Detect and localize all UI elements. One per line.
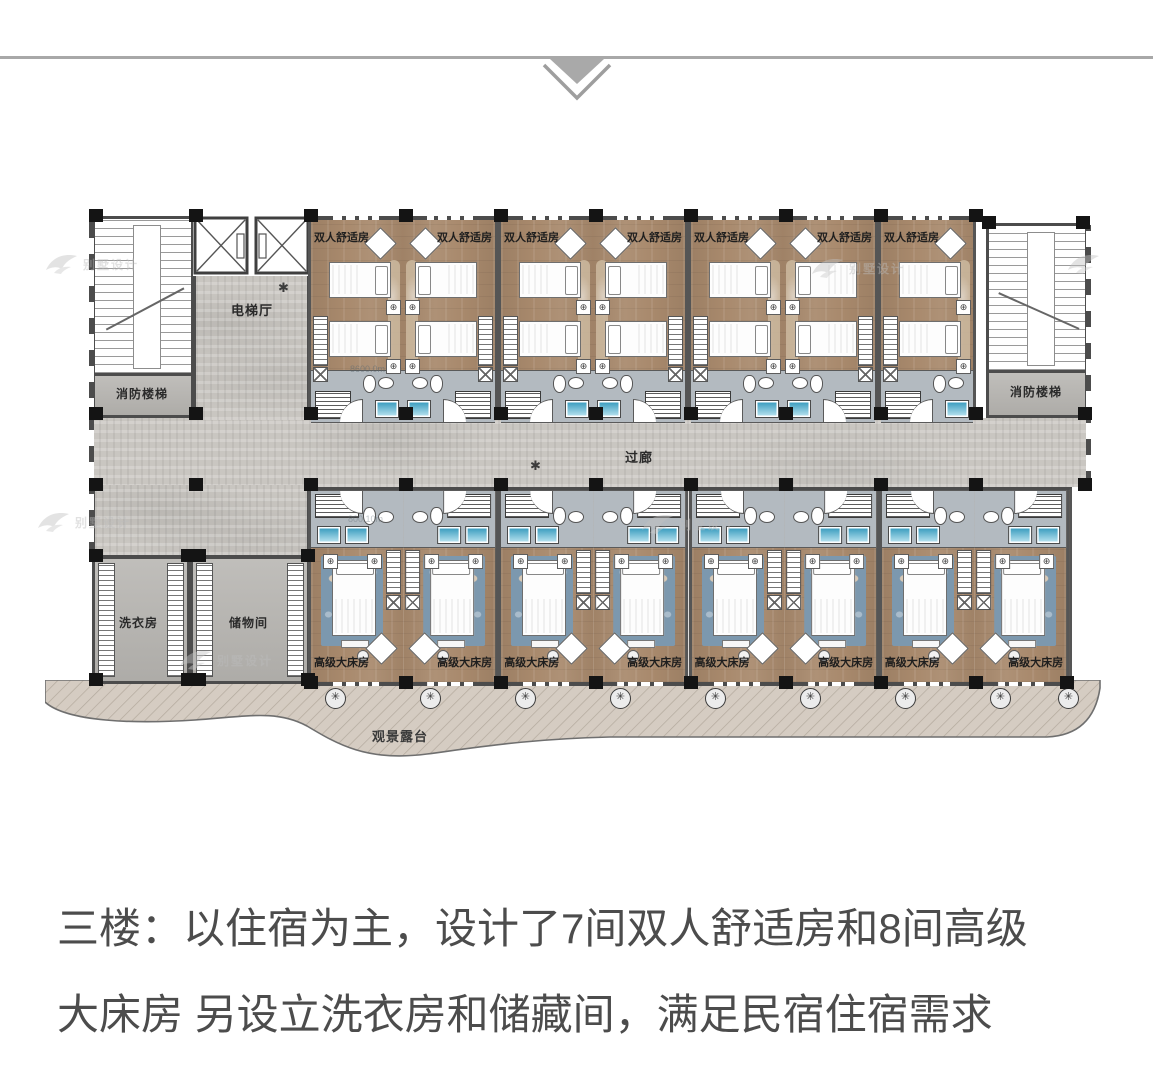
- bathroom: [501, 490, 593, 548]
- room-label: 高级大床房: [885, 654, 940, 670]
- luggage-rack-icon: [693, 367, 708, 382]
- room-label: 双人舒适房: [314, 229, 369, 245]
- vanity-icon: [345, 526, 369, 544]
- double-room: 双人舒适房 ⊕ ⊕: [783, 220, 878, 417]
- sink-icon: [378, 377, 394, 389]
- column: [494, 209, 508, 222]
- column: [301, 673, 315, 686]
- stairwell-right: [986, 223, 1088, 373]
- chevron-down-icon: [538, 59, 616, 107]
- vanity-icon: [375, 400, 399, 418]
- vanity-icon: [726, 526, 750, 544]
- column: [399, 478, 413, 491]
- dimension-note: 8600.0m: [350, 364, 385, 374]
- nightstand-icon: ⊕: [956, 359, 971, 374]
- fire-stairs-right-label: 消防楼梯: [1010, 383, 1062, 400]
- double-room: 双人舒适房 ⊕ ⊕: [593, 220, 688, 417]
- column: [779, 407, 793, 420]
- nightstand-icon: ⊕: [1039, 554, 1054, 569]
- toilet-icon: [620, 375, 633, 393]
- bathroom: [974, 490, 1066, 548]
- sink-icon: [759, 511, 775, 523]
- elevator-hall: [193, 273, 310, 420]
- bed-icon: [430, 560, 474, 636]
- vanity-icon: [465, 526, 489, 544]
- column: [1076, 216, 1090, 229]
- laundry-label: 洗衣房: [119, 614, 158, 631]
- column: [589, 676, 603, 689]
- column: [494, 407, 508, 420]
- nightstand-icon: ⊕: [468, 554, 483, 569]
- column: [874, 407, 888, 420]
- armchair-icon: [934, 227, 967, 260]
- column: [494, 676, 508, 689]
- potted-plant-icon: ✳: [800, 688, 821, 709]
- nightstand-icon: ⊕: [405, 300, 420, 315]
- right-facade-windows: [1086, 225, 1091, 487]
- terrace-label: 观景露台: [372, 726, 428, 745]
- double-room: 双人舒适房 ⊕ ⊕: [498, 220, 593, 417]
- wardrobe-icon: [405, 550, 420, 594]
- vanity-icon: [755, 400, 779, 418]
- toilet-icon: [744, 507, 757, 525]
- nightstand-icon: ⊕: [323, 554, 338, 569]
- window-strip: [998, 682, 1044, 686]
- window-strip: [617, 216, 663, 220]
- sink-icon: [792, 377, 808, 389]
- room-label: 双人舒适房: [817, 229, 872, 245]
- column: [969, 478, 983, 491]
- column: [779, 478, 793, 491]
- vanity-icon: [1036, 526, 1060, 544]
- king-room: ⊕ ⊕ 高级大床房: [498, 490, 593, 682]
- bird-logo-icon: [44, 252, 78, 276]
- bed-icon: [519, 321, 581, 357]
- armchair-icon: [554, 227, 587, 260]
- bench-icon: [818, 640, 846, 648]
- potted-plant-icon: ✳: [1058, 688, 1079, 709]
- armchair-icon: [744, 227, 777, 260]
- luggage-rack-icon: [313, 367, 328, 382]
- hall-lower: [92, 485, 310, 558]
- window-strip: [713, 216, 759, 220]
- luggage-rack-icon: [668, 367, 683, 382]
- luggage-rack-icon: [478, 367, 493, 382]
- dimension-note: 800.10m: [348, 514, 383, 524]
- nightstand-icon: ⊕: [849, 554, 864, 569]
- toilet-icon: [553, 375, 566, 393]
- room-label: 双人舒适房: [437, 229, 492, 245]
- bed-icon: [709, 262, 771, 298]
- wardrobe-icon: [313, 316, 328, 366]
- column: [399, 209, 413, 222]
- bed-icon: [605, 262, 667, 298]
- luggage-rack-icon: [386, 595, 401, 610]
- wardrobe-icon: [386, 550, 401, 594]
- bathroom: [403, 490, 495, 548]
- double-room-row: 双人舒适房 ⊕ ⊕ 双人舒适房: [308, 216, 976, 420]
- vanity-icon: [846, 526, 870, 544]
- bed-icon: [903, 560, 947, 636]
- room-label: 高级大床房: [628, 654, 683, 670]
- column: [684, 407, 698, 420]
- luggage-rack-icon: [957, 595, 972, 610]
- room-label: 高级大床房: [504, 654, 559, 670]
- vanity-icon: [818, 526, 842, 544]
- vanity-icon: [1008, 526, 1032, 544]
- column: [89, 407, 103, 420]
- column: [779, 676, 793, 689]
- left-facade-windows: [89, 218, 94, 558]
- shaft-hatch: [287, 563, 304, 677]
- elevator-hall-label: 电梯厅: [231, 300, 273, 319]
- window-strip: [427, 216, 473, 220]
- toilet-icon: [1001, 507, 1014, 525]
- column: [304, 407, 318, 420]
- vanity-icon: [535, 526, 559, 544]
- column: [874, 676, 888, 689]
- potted-plant-icon: ✳: [420, 688, 441, 709]
- king-room: ⊕ ⊕ 高级大床房: [784, 490, 879, 682]
- potted-plant-icon: ✳: [325, 688, 346, 709]
- window-strip: [427, 682, 473, 686]
- column: [301, 549, 315, 562]
- shaft-hatch: [167, 563, 184, 677]
- nightstand-icon: ⊕: [386, 300, 401, 315]
- column: [304, 478, 318, 491]
- bed-icon: [621, 560, 665, 636]
- fire-stairs-left-label: 消防楼梯: [116, 385, 168, 402]
- luggage-rack-icon: [858, 367, 873, 382]
- sink-icon: [948, 377, 964, 389]
- nightstand-icon: ⊕: [659, 554, 674, 569]
- wardrobe-icon: [957, 550, 972, 594]
- luggage-rack-icon: [595, 595, 610, 610]
- vanity-icon: [656, 526, 680, 544]
- window-strip: [904, 682, 950, 686]
- luggage-rack-icon: [405, 595, 420, 610]
- column: [874, 478, 888, 491]
- column: [304, 209, 318, 222]
- caption-line-1: 三楼：以住宿为主，设计了7间双人舒适房和8间高级: [57, 886, 1117, 972]
- bed-icon: [329, 321, 391, 357]
- window-strip: [714, 682, 760, 686]
- page: 观景露台 电梯厅 过廊 消防楼梯: [0, 0, 1153, 1083]
- column: [494, 478, 508, 491]
- king-room: ⊕ ⊕ 高级大床房: [593, 490, 688, 682]
- bed-icon: [415, 262, 477, 298]
- caption: 三楼：以住宿为主，设计了7间双人舒适房和8间高级 大床房 另设立洗衣房和储藏间，…: [57, 886, 1117, 1058]
- double-room: 双人舒适房 ⊕ ⊕: [308, 220, 403, 417]
- luggage-rack-icon: [503, 367, 518, 382]
- column: [89, 549, 103, 562]
- bed-icon: [332, 560, 376, 636]
- plant-icon: ✱: [278, 280, 289, 296]
- sink-icon: [949, 511, 965, 523]
- luggage-rack-icon: [976, 595, 991, 610]
- column: [1078, 478, 1092, 491]
- bed-icon: [811, 560, 855, 636]
- room-label: 双人舒适房: [504, 229, 559, 245]
- room-label: 高级大床房: [1008, 654, 1063, 670]
- bench-icon: [722, 640, 750, 648]
- vanity-icon: [565, 400, 589, 418]
- column: [89, 478, 103, 491]
- armchair-icon: [364, 227, 397, 260]
- bed-icon: [795, 262, 857, 298]
- column: [589, 209, 603, 222]
- shaft-hatch: [98, 563, 115, 677]
- elevator-icon: [193, 216, 310, 276]
- wardrobe-icon: [478, 316, 493, 366]
- window-strip: [903, 216, 949, 220]
- storage-label: 储物间: [229, 614, 268, 631]
- double-room: 双人舒适房 ⊕ ⊕: [688, 220, 783, 417]
- toilet-icon: [810, 375, 823, 393]
- toilet-icon: [430, 375, 443, 393]
- column: [89, 209, 103, 222]
- column: [684, 676, 698, 689]
- vanity-icon: [698, 526, 722, 544]
- luggage-rack-icon: [767, 595, 782, 610]
- sink-icon: [602, 377, 618, 389]
- corridor-label: 过廊: [625, 447, 653, 466]
- column: [969, 209, 983, 222]
- potted-plant-icon: ✳: [990, 688, 1011, 709]
- room-label: 双人舒适房: [627, 229, 682, 245]
- nightstand-icon: ⊕: [938, 554, 953, 569]
- vanity-icon: [437, 526, 461, 544]
- wardrobe-icon: [858, 316, 873, 366]
- column: [192, 673, 206, 686]
- nightstand-icon: ⊕: [595, 300, 610, 315]
- column: [969, 676, 983, 689]
- room-label: 高级大床房: [695, 654, 750, 670]
- room-label: 双人舒适房: [884, 229, 939, 245]
- toilet-icon: [934, 507, 947, 525]
- nightstand-icon: ⊕: [748, 554, 763, 569]
- wardrobe-icon: [976, 550, 991, 594]
- nightstand-icon: ⊕: [576, 359, 591, 374]
- bed-icon: [709, 321, 771, 357]
- terrace-deck: [45, 680, 1107, 780]
- toilet-icon: [363, 375, 376, 393]
- bench-icon: [341, 640, 369, 648]
- nightstand-icon: ⊕: [785, 359, 800, 374]
- window-strip: [333, 216, 379, 220]
- window-strip: [333, 682, 379, 686]
- column: [779, 209, 793, 222]
- potted-plant-icon: ✳: [895, 688, 916, 709]
- wardrobe-icon: [503, 316, 518, 366]
- column: [684, 478, 698, 491]
- bird-logo-icon: [36, 510, 70, 534]
- bathroom: [692, 490, 784, 548]
- shaft-hatch: [196, 563, 213, 677]
- wardrobe-icon: [883, 316, 898, 366]
- potted-plant-icon: ✳: [705, 688, 726, 709]
- nightstand-icon: ⊕: [805, 554, 820, 569]
- column: [969, 407, 983, 420]
- double-room: 双人舒适房 ⊕ ⊕: [878, 220, 973, 417]
- vanity-icon: [888, 526, 912, 544]
- wardrobe-icon: [767, 550, 782, 594]
- nightstand-icon: ⊕: [424, 554, 439, 569]
- bed-icon: [713, 560, 757, 636]
- king-room: ⊕ ⊕ 高级大床房: [403, 490, 498, 682]
- vanity-icon: [317, 526, 341, 544]
- nightstand-icon: ⊕: [766, 300, 781, 315]
- bed-icon: [415, 321, 477, 357]
- nightstand-icon: ⊕: [576, 300, 591, 315]
- bed-icon: [899, 321, 961, 357]
- bathroom: [784, 490, 876, 548]
- vanity-icon: [945, 400, 969, 418]
- nightstand-icon: ⊕: [513, 554, 528, 569]
- column: [1078, 407, 1092, 420]
- corridor: [92, 418, 1088, 487]
- nightstand-icon: ⊕: [956, 300, 971, 315]
- column: [89, 673, 103, 686]
- bed-icon: [795, 321, 857, 357]
- toilet-icon: [811, 507, 824, 525]
- stairwell-left: [92, 216, 194, 376]
- column: [399, 676, 413, 689]
- nightstand-icon: ⊕: [995, 554, 1010, 569]
- vanity-icon: [507, 526, 531, 544]
- column: [684, 209, 698, 222]
- nightstand-icon: ⊕: [367, 554, 382, 569]
- nightstand-icon: ⊕: [615, 554, 630, 569]
- potted-plant-icon: ✳: [515, 688, 536, 709]
- sink-icon: [568, 377, 584, 389]
- toilet-icon: [620, 507, 633, 525]
- window-strip: [618, 682, 664, 686]
- nightstand-icon: ⊕: [894, 554, 909, 569]
- bathroom: [882, 490, 974, 548]
- column: [982, 216, 996, 229]
- wardrobe-icon: [693, 316, 708, 366]
- bed-icon: [1001, 560, 1045, 636]
- vanity-icon: [916, 526, 940, 544]
- bench-icon: [912, 640, 940, 648]
- nightstand-icon: ⊕: [595, 359, 610, 374]
- sink-icon: [412, 511, 428, 523]
- sink-icon: [568, 511, 584, 523]
- king-room: ⊕ ⊕ 高级大床房: [974, 490, 1069, 682]
- toilet-icon: [743, 375, 756, 393]
- potted-plant-icon: ✳: [610, 688, 631, 709]
- toilet-icon: [933, 375, 946, 393]
- column: [589, 478, 603, 491]
- plant-icon: ✱: [530, 458, 541, 474]
- room-label: 高级大床房: [314, 654, 369, 670]
- bench-icon: [628, 640, 656, 648]
- window-strip: [807, 216, 853, 220]
- bed-icon: [522, 560, 566, 636]
- double-room: 双人舒适房 ⊕ ⊕: [403, 220, 498, 417]
- column: [874, 209, 888, 222]
- nightstand-icon: ⊕: [766, 359, 781, 374]
- sink-icon: [983, 511, 999, 523]
- stair-landing: [1027, 232, 1055, 366]
- sink-icon: [793, 511, 809, 523]
- toilet-icon: [430, 507, 443, 525]
- sink-icon: [602, 511, 618, 523]
- nightstand-icon: ⊕: [405, 359, 420, 374]
- vanity-icon: [628, 526, 652, 544]
- column: [189, 478, 203, 491]
- wardrobe-icon: [595, 550, 610, 594]
- luggage-rack-icon: [786, 595, 801, 610]
- room-label: 高级大床房: [437, 654, 492, 670]
- king-room-row: ⊕ ⊕ 高级大床房 ⊕ ⊕ 高级大床房: [308, 487, 1072, 686]
- luggage-rack-icon: [576, 595, 591, 610]
- wardrobe-icon: [576, 550, 591, 594]
- nightstand-icon: ⊕: [704, 554, 719, 569]
- bed-icon: [519, 262, 581, 298]
- window-strip: [523, 682, 569, 686]
- room-label: 双人舒适房: [694, 229, 749, 245]
- window-strip: [808, 682, 854, 686]
- window-strip: [523, 216, 569, 220]
- caption-line-2: 大床房 另设立洗衣房和储藏间，满足民宿住宿需求: [57, 972, 1117, 1058]
- bed-icon: [329, 262, 391, 298]
- wardrobe-icon: [786, 550, 801, 594]
- nightstand-icon: ⊕: [785, 300, 800, 315]
- column: [192, 549, 206, 562]
- bed-icon: [605, 321, 667, 357]
- nightstand-icon: ⊕: [386, 359, 401, 374]
- column: [189, 407, 203, 420]
- column: [189, 209, 203, 222]
- sink-icon: [412, 377, 428, 389]
- bed-icon: [899, 262, 961, 298]
- stair-landing: [133, 225, 161, 369]
- king-room: ⊕ ⊕ 高级大床房: [879, 490, 974, 682]
- sink-icon: [758, 377, 774, 389]
- king-room: ⊕ ⊕ 高级大床房: [689, 490, 784, 682]
- room-label: 高级大床房: [818, 654, 873, 670]
- column: [589, 407, 603, 420]
- column: [1060, 676, 1074, 689]
- wardrobe-icon: [668, 316, 683, 366]
- luggage-rack-icon: [883, 367, 898, 382]
- nightstand-icon: ⊕: [557, 554, 572, 569]
- bathroom: [593, 490, 685, 548]
- toilet-icon: [553, 507, 566, 525]
- bench-icon: [437, 640, 465, 648]
- column: [399, 407, 413, 420]
- bench-icon: [1008, 640, 1036, 648]
